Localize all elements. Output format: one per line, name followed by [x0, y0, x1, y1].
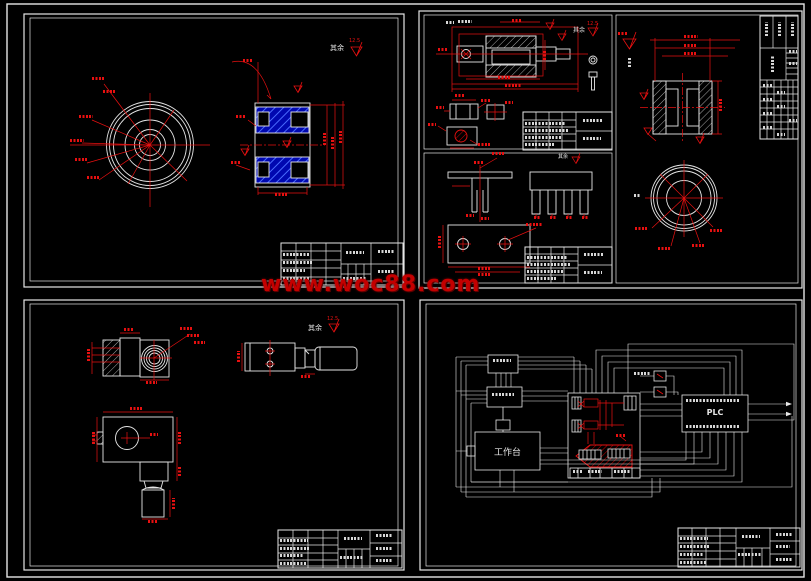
component-label: [634, 372, 650, 375]
controller-box-1: [488, 355, 518, 373]
bom-text: [763, 98, 773, 101]
l-bracket-view: [97, 417, 173, 517]
dim-label: [505, 101, 513, 104]
dim-label: [243, 59, 253, 62]
bom-text: [791, 22, 794, 36]
titleblock-text: [280, 554, 304, 557]
dim-label: [172, 498, 175, 509]
titleblock-text: [376, 559, 392, 562]
titleblock-text: [680, 561, 706, 564]
surface-note-bl: 其余: [308, 325, 322, 332]
titleblock-text: [525, 129, 569, 132]
titleblock-text: [280, 562, 306, 565]
dim-label: [534, 216, 541, 219]
dim-label: [178, 432, 181, 444]
dim-label: [618, 32, 627, 35]
titleblock-text: [527, 277, 557, 280]
dim-label: [466, 214, 474, 217]
workbench-label: 工作台: [475, 445, 540, 458]
bom-text: [763, 126, 773, 129]
plc-pin-labels: [686, 399, 740, 402]
controller-box-2: [487, 387, 522, 407]
dim-label: [237, 351, 240, 362]
dim-label: [474, 161, 484, 164]
titleblock-text: [344, 537, 362, 540]
plc-label: PLC: [682, 408, 748, 417]
titleblock-text: [527, 256, 567, 259]
dim-label: [582, 216, 589, 219]
dim-label: [692, 244, 704, 247]
dim-label: [481, 99, 491, 102]
titleblock-text: [583, 137, 601, 140]
titleblock-text: [776, 558, 792, 561]
surface-value-tra: 12.5: [587, 22, 598, 27]
dim-label: [719, 99, 722, 111]
titleblock-text: [776, 545, 790, 548]
dim-label: [92, 77, 105, 80]
table-text: [588, 470, 602, 473]
bom-text: [771, 56, 774, 72]
table-text: [614, 470, 630, 473]
titleblock-text: [527, 270, 563, 273]
dim-label: [178, 466, 181, 476]
dim-label: [130, 407, 142, 410]
titleblock-text: [376, 547, 392, 550]
dim-label: [103, 90, 116, 93]
bom-text: [777, 91, 785, 94]
titleblock-text: [525, 143, 555, 146]
dim-label: [194, 341, 205, 344]
titleblock-text: [346, 251, 364, 254]
dim-label: [323, 133, 326, 145]
dim-label: [550, 216, 557, 219]
dim-label: [481, 217, 489, 220]
titleblock-text: [525, 136, 561, 139]
dim-label: [438, 48, 447, 51]
small-parts: [447, 104, 504, 145]
dim-label: [505, 84, 521, 87]
dim-label: [710, 229, 722, 232]
dim-label: [658, 247, 670, 250]
dim-label: [616, 434, 626, 437]
component-label: [492, 393, 514, 396]
dim-label: [478, 267, 490, 270]
sheet-pulley: [24, 14, 404, 287]
titleblock-text: [776, 533, 792, 536]
dim-label: [455, 94, 465, 97]
titleblock-text: [738, 553, 762, 556]
titleblock-text: [680, 553, 704, 556]
dim-label: [87, 176, 100, 179]
dim-label: [331, 137, 334, 149]
plc-pin-labels: [686, 425, 740, 428]
dim-label: [498, 76, 510, 79]
annotation-text: [628, 57, 631, 67]
small-parts-dims: [438, 100, 507, 148]
detail-box-red-components: [578, 399, 626, 444]
dim-label: [87, 349, 90, 361]
bom-text: [789, 62, 797, 65]
roughness-symbols-tl: [241, 42, 362, 156]
shaft-assembly-view: [457, 36, 597, 90]
titleblock-text: [584, 271, 602, 274]
annotation-text: [458, 20, 472, 23]
titleblock-text: [584, 253, 604, 256]
wire-arrows: [786, 402, 792, 416]
dim-label: [684, 52, 696, 55]
dim-label: [684, 44, 696, 47]
dim-label: [301, 375, 311, 378]
component-label: [493, 359, 511, 362]
fork-plate-dims: [443, 158, 584, 272]
dim-label: [339, 131, 342, 143]
dim-label: [150, 433, 158, 436]
dim-label: [236, 115, 245, 118]
bom-text: [789, 50, 797, 53]
bom-text: [777, 133, 785, 136]
bom-text: [778, 22, 781, 36]
annotation-text: [634, 194, 640, 197]
dim-label: [635, 227, 647, 230]
dim-label: [146, 381, 157, 384]
titleblock-text: [376, 534, 392, 537]
bom-text: [763, 84, 773, 87]
wires: [456, 344, 794, 497]
titleblock-text: [280, 547, 310, 550]
sheet-bottom-left: [24, 300, 404, 570]
sheet-top-right: [419, 11, 802, 288]
cad-drawing-canvas: www.woc88.com PLC 工作台 其余 12.5 其余 12.5 其余…: [0, 0, 811, 581]
dim-label: [79, 115, 93, 118]
dim-label: [492, 152, 504, 155]
dim-label: [75, 158, 88, 161]
dim-label: [543, 50, 546, 60]
surface-note-trb: 其余: [558, 155, 568, 160]
bom-text: [765, 22, 768, 36]
watermark: www.woc88.com: [261, 272, 480, 297]
dim-label: [124, 328, 134, 331]
titleblock-text: [583, 119, 603, 122]
dim-label: [275, 193, 288, 196]
titleblock-text: [280, 539, 308, 542]
stepped-shaft-view: [245, 343, 357, 371]
stud-part-view: [103, 338, 169, 377]
dim-label: [187, 334, 199, 337]
dim-label: [684, 35, 698, 38]
annotation-text: [446, 21, 454, 24]
titleblock-text: [527, 263, 571, 266]
stem-component: [496, 407, 510, 432]
titleblock-text: [340, 556, 364, 559]
titleblock-text: [742, 535, 760, 538]
titleblock-text: [283, 253, 309, 256]
dim-label: [478, 143, 490, 146]
dim-label: [70, 139, 84, 142]
table-text: [573, 470, 583, 473]
dim-label: [231, 161, 240, 164]
dim-label: [148, 520, 158, 523]
bom-text: [789, 119, 797, 122]
surface-note-tl: 其余: [330, 45, 344, 52]
dim-label: [436, 106, 444, 109]
dim-label: [566, 216, 573, 219]
surface-value-bl: 12.5: [327, 317, 338, 322]
dim-label: [438, 236, 441, 248]
titleblock-text: [525, 122, 565, 125]
sheet-schematic: [420, 300, 802, 570]
bom-text: [763, 112, 773, 115]
relay-symbols: [654, 371, 666, 397]
fork-side-view: [530, 172, 592, 214]
dim-label: [526, 223, 542, 226]
titleblock-text: [378, 250, 394, 253]
bushing-end-dims: [645, 160, 723, 246]
surface-value-tl: 12.5: [349, 39, 360, 44]
dim-label: [512, 19, 522, 22]
dim-label: [180, 327, 193, 330]
bom-text: [777, 105, 785, 108]
titleblock-text: [680, 545, 710, 548]
dim-label: [92, 432, 95, 444]
titleblock-text: [283, 261, 313, 264]
dim-label: [428, 123, 436, 126]
roughness-symbols-trb: [572, 153, 580, 164]
titleblock-text: [680, 537, 708, 540]
surface-note-tra: 其余: [573, 28, 585, 34]
